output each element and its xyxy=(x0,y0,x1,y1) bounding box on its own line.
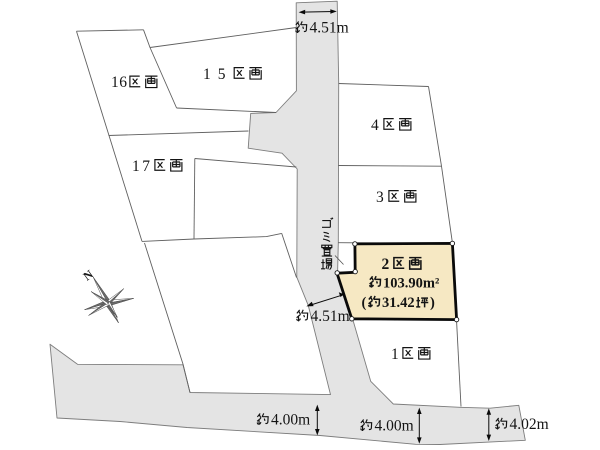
svg-text:N: N xyxy=(81,267,97,284)
svg-text:15: 15 xyxy=(203,66,233,83)
svg-text:4.00m: 4.00m xyxy=(375,418,414,435)
svg-text:(: ( xyxy=(362,295,367,311)
svg-text:3: 3 xyxy=(376,189,384,206)
svg-text:1: 1 xyxy=(391,346,399,363)
svg-text:17: 17 xyxy=(132,158,153,175)
svg-text:4.51m: 4.51m xyxy=(310,20,349,37)
svg-text:): ) xyxy=(430,295,435,311)
svg-text:31.42: 31.42 xyxy=(382,295,415,311)
svg-text:4.51m: 4.51m xyxy=(311,308,350,325)
svg-text:16: 16 xyxy=(111,74,128,91)
svg-text:4: 4 xyxy=(371,117,379,134)
svg-text:4.00m: 4.00m xyxy=(271,412,310,429)
svg-text:103.90m²: 103.90m² xyxy=(383,275,439,291)
svg-text:2: 2 xyxy=(382,256,390,273)
svg-text:4.02m: 4.02m xyxy=(510,416,549,433)
